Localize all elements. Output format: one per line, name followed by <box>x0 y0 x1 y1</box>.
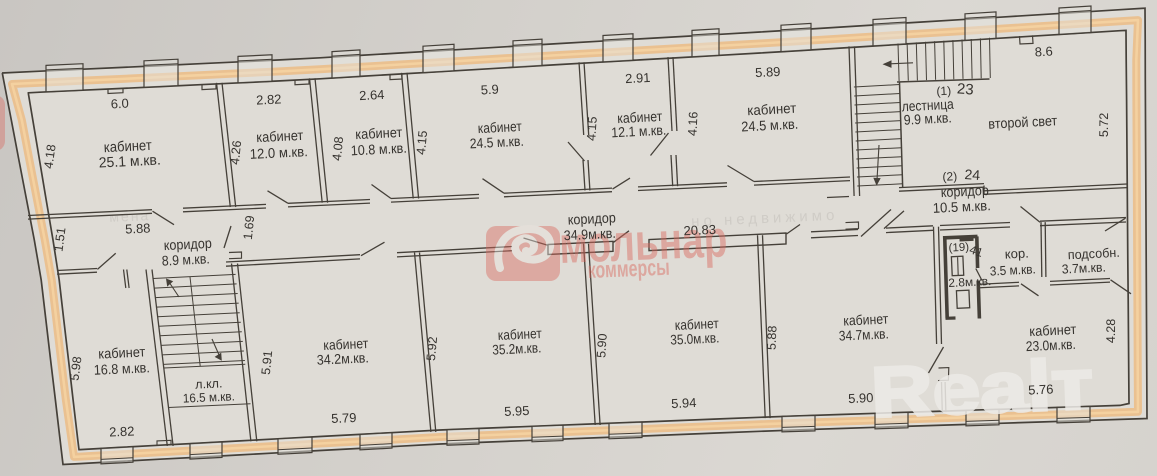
svg-text:4.15: 4.15 <box>414 130 430 156</box>
svg-text:8.9 м.кв.: 8.9 м.кв. <box>161 250 210 268</box>
svg-text:10.5 м.кв.: 10.5 м.кв. <box>932 197 991 216</box>
svg-text:2.82: 2.82 <box>109 423 135 439</box>
svg-text:Realт: Realт <box>869 345 1094 433</box>
svg-text:(19): (19) <box>948 242 969 255</box>
svg-text:коммерсы: коммерсы <box>587 254 670 283</box>
svg-text:24: 24 <box>964 166 981 183</box>
svg-text:кор.: кор. <box>1004 245 1029 261</box>
svg-text:5.94: 5.94 <box>671 395 697 411</box>
svg-text:2.8м.кв.: 2.8м.кв. <box>948 274 992 290</box>
svg-text:5.95: 5.95 <box>504 403 530 419</box>
svg-text:4.26: 4.26 <box>228 140 245 166</box>
svg-text:5.79: 5.79 <box>331 410 357 426</box>
svg-text:2.91: 2.91 <box>625 70 651 86</box>
svg-text:5.90: 5.90 <box>594 333 609 358</box>
svg-text:23.0м.кв.: 23.0м.кв. <box>1025 336 1076 354</box>
svg-text:5.90: 5.90 <box>848 390 874 406</box>
svg-text:23: 23 <box>956 80 974 98</box>
svg-text:2.64: 2.64 <box>359 87 385 103</box>
svg-text:5.92: 5.92 <box>424 336 440 362</box>
svg-text:10.8 м.кв.: 10.8 м.кв. <box>350 140 407 159</box>
svg-text:5.72: 5.72 <box>1097 113 1111 137</box>
svg-text:кабинет: кабинет <box>256 127 304 145</box>
svg-text:4.15: 4.15 <box>584 116 600 141</box>
svg-text:1.69: 1.69 <box>241 215 258 241</box>
svg-text:16.8 м.кв.: 16.8 м.кв. <box>93 359 150 378</box>
svg-text:5.88: 5.88 <box>765 325 780 350</box>
svg-text:34.2м.кв.: 34.2м.кв. <box>316 349 369 367</box>
svg-text:9.9 м.кв.: 9.9 м.кв. <box>903 109 952 127</box>
svg-text:12.1 м.кв.: 12.1 м.кв. <box>611 122 667 141</box>
svg-text:35.2м.кв.: 35.2м.кв. <box>492 339 542 357</box>
svg-text:3.5 м.кв.: 3.5 м.кв. <box>989 261 1036 278</box>
svg-text:34.7м.кв.: 34.7м.кв. <box>838 325 889 343</box>
svg-text:5.89: 5.89 <box>755 64 781 80</box>
svg-text:20.83: 20.83 <box>683 222 716 239</box>
svg-text:8.6: 8.6 <box>1034 44 1053 60</box>
svg-text:12.0 м.кв.: 12.0 м.кв. <box>249 143 308 162</box>
svg-text:34.9м.кв.: 34.9м.кв. <box>563 225 616 244</box>
svg-text:35.0м.кв.: 35.0м.кв. <box>670 329 720 347</box>
svg-text:5.88: 5.88 <box>125 220 151 236</box>
svg-text:5.76: 5.76 <box>1028 381 1054 397</box>
svg-text:16.5 м.кв.: 16.5 м.кв. <box>183 389 236 405</box>
svg-text:6.0: 6.0 <box>110 96 129 112</box>
svg-text:4.28: 4.28 <box>1104 319 1118 343</box>
svg-text:24.5 м.кв.: 24.5 м.кв. <box>469 133 524 152</box>
svg-text:(2): (2) <box>942 169 957 184</box>
svg-text:24.5 м.кв.: 24.5 м.кв. <box>741 116 799 135</box>
svg-text:25.1 м.кв.: 25.1 м.кв. <box>98 153 161 172</box>
svg-text:4.08: 4.08 <box>330 136 346 162</box>
svg-text:3.7м.кв.: 3.7м.кв. <box>1061 259 1106 276</box>
svg-text:4.16: 4.16 <box>685 111 700 136</box>
svg-text:2.82: 2.82 <box>256 91 282 107</box>
svg-text:5.91: 5.91 <box>259 350 275 376</box>
svg-text:5.9: 5.9 <box>480 82 499 98</box>
